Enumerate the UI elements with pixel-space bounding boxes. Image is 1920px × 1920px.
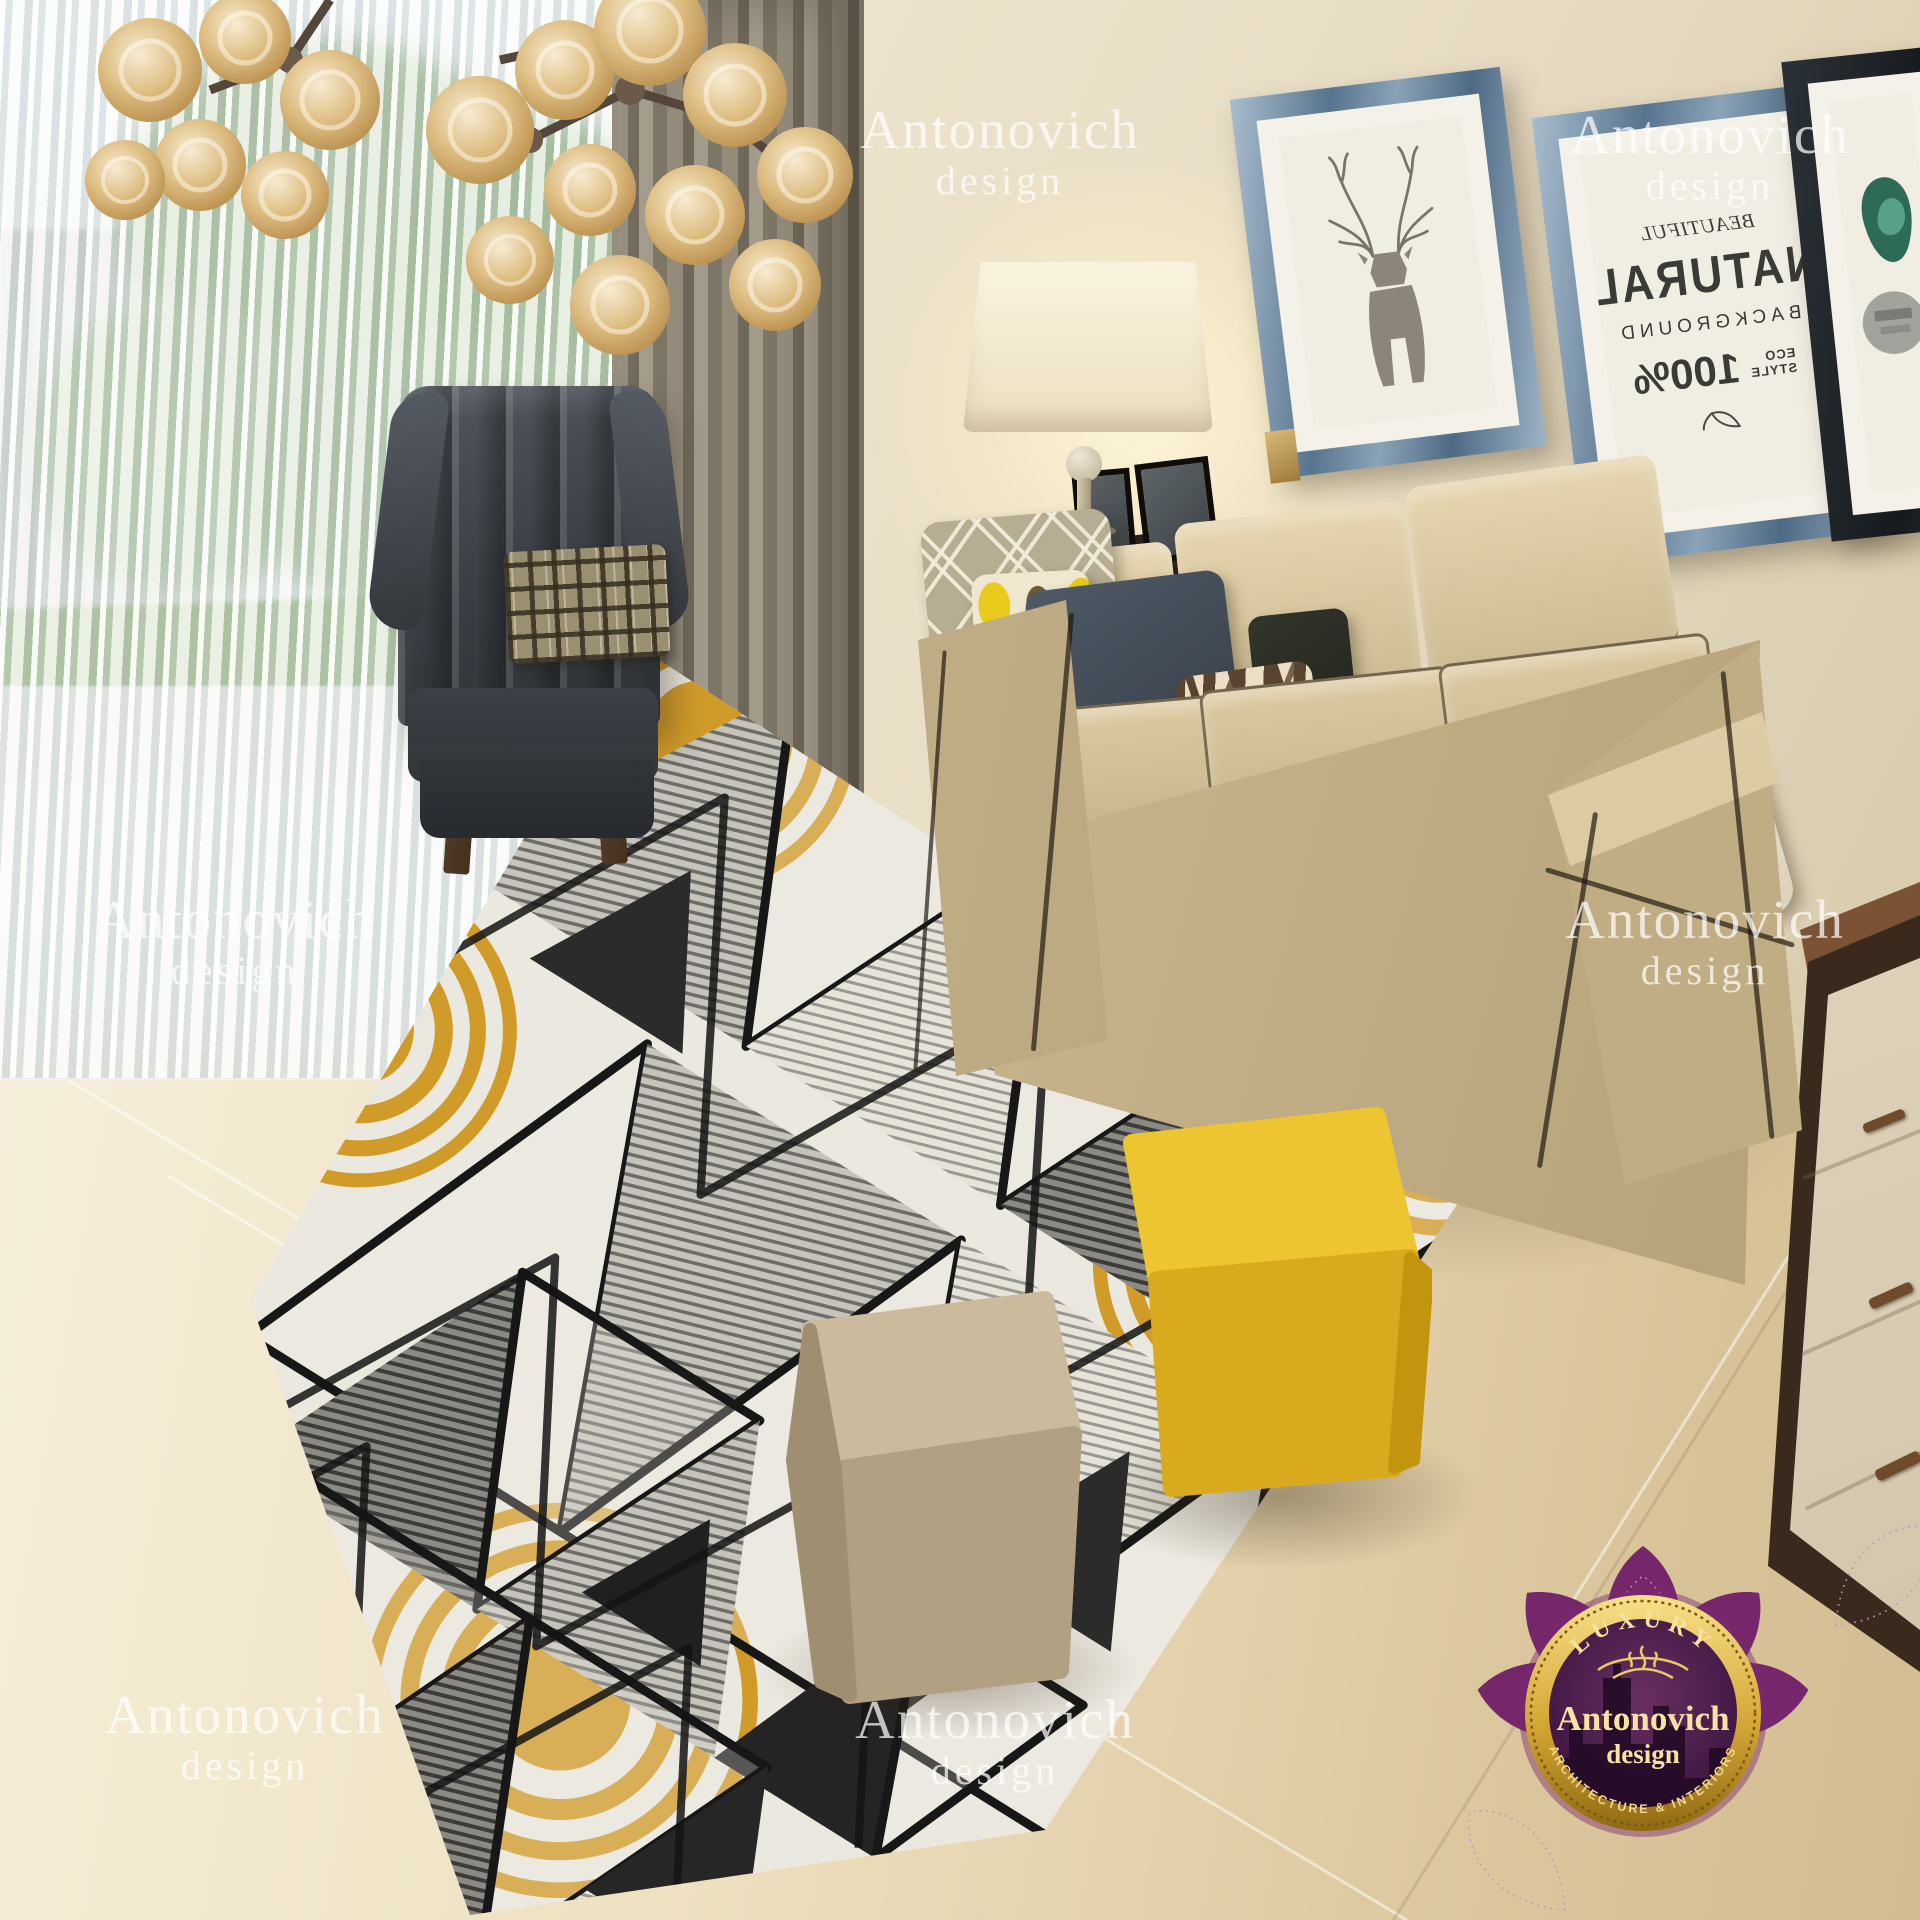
living-room-scene: BEAUTIFUL NATURAL BACKGROUND ECO STYLE 1…: [0, 0, 1920, 1920]
gold-badge: LUXURY Antonovich design ARCHITECTURE & …: [1519, 1589, 1767, 1837]
frame-mat: [1256, 94, 1519, 453]
pouf-yellow: [1072, 1068, 1432, 1528]
brand-logo: LUXURY Antonovich design ARCHITECTURE & …: [1438, 1518, 1920, 1920]
abstract-green-art: [1830, 93, 1920, 493]
frame-mat: [1808, 71, 1920, 515]
leaf-icon: [1697, 403, 1744, 434]
pouf-taupe: [755, 1270, 1085, 1720]
table-lamp-crystal: [1066, 446, 1102, 482]
armchair-accent-pillow: [503, 544, 671, 664]
deer-artwork: [1279, 116, 1497, 430]
abstract-artwork: [1830, 93, 1920, 493]
deer-art-frame: [1230, 67, 1547, 479]
amber-glass-globes: [85, 0, 853, 355]
stag-illustration: [1279, 116, 1497, 430]
quote-line-beautiful: BEAUTIFUL: [1638, 209, 1756, 246]
logo-brand: Antonovich: [1556, 1699, 1729, 1738]
quote-line-100: 100%: [1630, 343, 1742, 404]
quote-eco-style: ECO STYLE: [1748, 345, 1798, 380]
logo-sub: design: [1606, 1739, 1680, 1769]
table-lamp-shade: [963, 262, 1213, 432]
armchair-front: [420, 760, 654, 838]
gold-corner-accent: [1264, 429, 1300, 484]
chandelier: [30, 0, 870, 380]
